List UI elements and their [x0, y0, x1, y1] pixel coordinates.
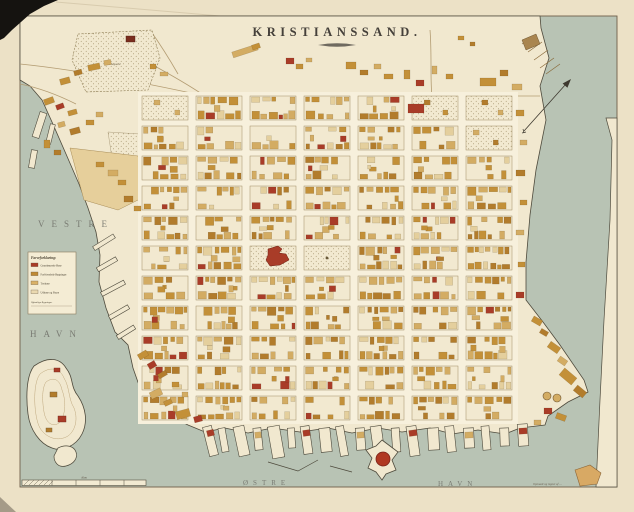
building — [414, 157, 422, 163]
label-ostre-havn: HAVN — [438, 480, 477, 488]
building — [475, 277, 482, 283]
building — [155, 217, 161, 225]
building — [508, 187, 511, 193]
building — [306, 58, 312, 62]
building — [360, 247, 365, 255]
building — [501, 376, 505, 382]
building — [208, 232, 215, 239]
building — [383, 261, 389, 269]
building — [378, 247, 383, 253]
building — [423, 413, 427, 419]
building — [468, 157, 477, 164]
building — [345, 113, 349, 119]
building — [507, 277, 511, 284]
building — [414, 352, 419, 359]
building — [233, 233, 238, 239]
building — [155, 277, 163, 283]
building — [500, 346, 506, 352]
building — [394, 323, 402, 329]
building — [157, 136, 163, 142]
building — [198, 355, 205, 359]
building — [226, 173, 234, 179]
pier — [500, 428, 510, 446]
building — [369, 367, 373, 375]
building — [260, 354, 268, 359]
building — [261, 114, 267, 119]
building — [198, 127, 204, 135]
building — [391, 255, 397, 259]
building — [442, 157, 450, 164]
legend-item-label: Udhuse og Skure — [41, 291, 60, 294]
building — [206, 127, 213, 133]
building — [258, 367, 266, 374]
building — [505, 247, 509, 254]
building — [286, 58, 294, 64]
building — [419, 397, 426, 402]
building — [233, 385, 239, 389]
building — [162, 204, 167, 209]
building — [252, 397, 258, 402]
building — [384, 145, 392, 149]
building — [252, 203, 260, 209]
building — [499, 187, 506, 192]
building — [270, 324, 278, 329]
building — [198, 337, 203, 341]
building — [144, 157, 151, 165]
fortress-tower — [376, 452, 390, 466]
building — [154, 145, 158, 149]
building — [404, 70, 410, 79]
building — [373, 293, 382, 299]
unbuilt-lot — [142, 96, 188, 120]
building — [198, 157, 206, 161]
building — [320, 217, 324, 225]
legend-footnote: Offentlige Bygninger — [31, 301, 52, 304]
building — [453, 201, 457, 209]
building — [267, 307, 276, 315]
building — [446, 74, 453, 79]
building — [207, 346, 212, 350]
building — [434, 174, 443, 179]
building — [420, 141, 426, 149]
building — [159, 127, 164, 133]
building — [270, 277, 275, 285]
building — [206, 397, 213, 403]
building — [198, 144, 205, 149]
building — [371, 143, 377, 149]
building — [198, 264, 205, 269]
building — [379, 137, 382, 141]
building — [339, 351, 343, 359]
building — [172, 367, 179, 374]
building — [480, 78, 496, 86]
building — [235, 111, 240, 119]
building — [173, 187, 179, 193]
building — [273, 173, 282, 179]
building — [174, 197, 179, 201]
building — [437, 262, 442, 269]
building — [223, 187, 229, 191]
building — [207, 143, 214, 149]
building — [144, 397, 148, 402]
building — [468, 217, 472, 225]
building — [325, 217, 329, 224]
building — [429, 261, 435, 269]
building — [360, 307, 365, 313]
building — [395, 196, 399, 202]
building — [235, 142, 241, 149]
building — [473, 130, 479, 135]
building — [421, 247, 429, 253]
building — [468, 351, 473, 359]
building — [374, 64, 381, 69]
building — [211, 97, 215, 104]
building — [210, 277, 214, 283]
building — [335, 325, 340, 329]
building — [86, 120, 94, 125]
building — [320, 165, 328, 170]
building — [508, 367, 511, 374]
building — [431, 247, 439, 254]
building — [441, 197, 447, 201]
building — [229, 307, 236, 315]
building — [252, 367, 256, 374]
building — [368, 307, 372, 312]
building — [366, 351, 372, 359]
building — [313, 415, 320, 419]
building — [227, 293, 235, 299]
building — [331, 337, 338, 342]
building — [385, 187, 389, 192]
building — [306, 157, 314, 163]
building — [237, 367, 241, 372]
legend-item-label: Grundmurede Huse — [41, 264, 63, 267]
building — [170, 157, 177, 162]
building — [481, 217, 487, 222]
building — [262, 337, 267, 341]
building — [493, 247, 497, 252]
building — [290, 97, 295, 104]
building — [183, 234, 187, 239]
building — [379, 346, 384, 351]
building — [423, 261, 427, 269]
building — [428, 187, 435, 193]
building — [198, 384, 204, 389]
building — [310, 135, 314, 141]
building — [500, 70, 508, 76]
building — [270, 141, 279, 149]
building — [326, 337, 330, 341]
building — [475, 247, 479, 252]
building — [180, 217, 187, 223]
building — [366, 217, 371, 222]
pier — [355, 428, 366, 451]
building — [504, 397, 511, 404]
building — [176, 247, 181, 254]
building — [134, 206, 141, 211]
building — [217, 187, 222, 195]
building — [224, 232, 231, 239]
building — [377, 337, 384, 343]
building — [252, 307, 257, 311]
building — [177, 292, 185, 299]
building — [432, 66, 437, 74]
building — [387, 235, 392, 239]
building — [306, 353, 310, 359]
building — [306, 337, 313, 345]
building — [439, 145, 444, 149]
legend-item-label: Forblændede Bygninger — [41, 273, 67, 276]
building — [385, 367, 389, 375]
building — [444, 203, 451, 209]
building — [500, 381, 504, 389]
building — [360, 143, 369, 149]
building — [485, 277, 491, 283]
building — [506, 382, 511, 389]
building — [292, 323, 295, 329]
building — [215, 307, 219, 314]
building — [383, 293, 391, 299]
label-vestre-havn: HAVN — [30, 329, 83, 339]
building — [306, 413, 311, 419]
building — [315, 204, 321, 209]
scale-label: Alen — [81, 476, 87, 480]
building — [277, 293, 282, 299]
building — [207, 352, 212, 359]
building — [452, 294, 456, 299]
building — [424, 292, 430, 299]
building — [235, 412, 240, 419]
building — [365, 381, 374, 389]
building — [482, 100, 488, 105]
building — [468, 307, 476, 315]
building — [504, 217, 511, 223]
building — [267, 225, 273, 230]
building — [287, 201, 292, 209]
building — [437, 232, 441, 239]
building — [488, 235, 492, 239]
building — [485, 397, 493, 404]
building — [205, 277, 209, 282]
building — [336, 97, 342, 105]
building — [501, 277, 505, 281]
building — [238, 247, 241, 253]
building — [333, 187, 342, 195]
building — [498, 110, 503, 115]
building — [118, 180, 126, 185]
building — [446, 141, 455, 149]
building — [223, 397, 228, 404]
building — [226, 383, 231, 389]
building — [486, 307, 494, 313]
building — [468, 382, 472, 389]
kristianssand-map: Kirkegaard Farveforklaring: Grundmure — [0, 0, 634, 512]
building — [484, 407, 491, 412]
building — [306, 97, 310, 102]
building — [345, 351, 349, 359]
building — [487, 157, 492, 162]
building — [478, 307, 483, 312]
building — [214, 262, 221, 269]
building — [429, 337, 435, 342]
landmark-red-building — [408, 104, 424, 113]
building — [435, 217, 439, 224]
building — [208, 415, 214, 419]
building — [474, 231, 478, 239]
building — [313, 381, 318, 389]
building — [285, 376, 289, 382]
building — [278, 307, 284, 311]
building — [445, 367, 450, 374]
building — [424, 157, 429, 162]
building — [319, 287, 324, 291]
building — [332, 205, 337, 209]
building — [390, 367, 394, 373]
building — [414, 127, 421, 134]
building — [414, 294, 421, 299]
building — [306, 127, 312, 131]
building — [225, 141, 233, 149]
building — [390, 187, 398, 192]
building — [328, 415, 333, 419]
building — [485, 352, 493, 359]
building — [237, 173, 241, 179]
building — [369, 277, 377, 285]
building — [344, 187, 349, 191]
building — [198, 111, 204, 119]
building — [271, 352, 276, 359]
building — [235, 187, 240, 194]
building — [508, 307, 511, 311]
building — [229, 286, 233, 292]
building — [227, 277, 232, 281]
building — [220, 383, 224, 389]
building — [360, 174, 368, 179]
building — [267, 295, 276, 299]
building — [159, 247, 168, 251]
building — [380, 307, 389, 312]
building — [445, 172, 452, 179]
building — [217, 111, 224, 119]
building — [236, 337, 241, 345]
building — [232, 247, 236, 255]
building — [317, 277, 324, 281]
legend-item-label: Træhuse — [41, 282, 51, 285]
building — [422, 337, 427, 342]
building — [198, 367, 202, 374]
building — [144, 321, 151, 329]
building — [367, 157, 375, 163]
building — [534, 420, 541, 425]
building — [281, 324, 285, 329]
building — [360, 277, 367, 282]
building — [171, 321, 177, 329]
building — [178, 397, 184, 403]
building — [451, 187, 456, 194]
building — [431, 203, 435, 209]
building — [214, 171, 220, 179]
building — [306, 187, 314, 194]
gas-tank — [543, 392, 551, 400]
building — [306, 203, 313, 209]
building — [158, 165, 165, 170]
building — [369, 114, 378, 119]
building — [313, 171, 321, 179]
building — [273, 411, 277, 419]
building — [493, 140, 498, 145]
gas-tank — [553, 394, 561, 402]
building — [443, 110, 448, 115]
building — [330, 217, 338, 225]
building — [416, 80, 424, 86]
building — [217, 235, 223, 239]
building — [252, 321, 258, 329]
building — [263, 217, 269, 222]
building — [419, 367, 423, 372]
building — [155, 353, 163, 359]
building — [360, 264, 365, 269]
building — [360, 232, 365, 239]
building — [206, 383, 213, 389]
building — [332, 175, 337, 179]
building — [162, 157, 169, 165]
building — [235, 277, 241, 282]
building — [151, 187, 158, 194]
building — [346, 217, 349, 223]
building — [344, 411, 349, 419]
park-fountain — [326, 257, 329, 260]
building — [144, 231, 149, 239]
building — [384, 172, 388, 179]
building — [384, 74, 393, 79]
building — [252, 142, 261, 149]
building — [158, 287, 165, 293]
legend-swatch — [31, 281, 38, 285]
building — [424, 277, 430, 283]
label-vestre: VESTRE — [38, 219, 114, 229]
building — [151, 127, 157, 132]
building — [436, 397, 442, 404]
building — [360, 292, 366, 299]
building — [518, 262, 525, 267]
building — [330, 97, 335, 104]
building — [393, 144, 398, 149]
building — [328, 127, 336, 131]
building — [292, 277, 295, 283]
building — [322, 157, 329, 163]
building — [252, 413, 257, 419]
building — [179, 352, 187, 359]
building — [276, 217, 284, 222]
building — [480, 247, 484, 253]
building — [379, 277, 384, 285]
building — [476, 196, 482, 201]
building — [221, 307, 227, 313]
building — [468, 367, 474, 371]
building — [167, 187, 171, 192]
building — [308, 166, 312, 171]
building — [367, 187, 373, 192]
building — [360, 127, 366, 132]
building — [233, 257, 241, 262]
building — [171, 174, 178, 179]
building — [272, 97, 276, 101]
building — [144, 277, 153, 284]
pier — [287, 428, 295, 448]
building — [360, 414, 365, 419]
building — [472, 377, 475, 381]
pier-warehouse — [465, 432, 473, 438]
